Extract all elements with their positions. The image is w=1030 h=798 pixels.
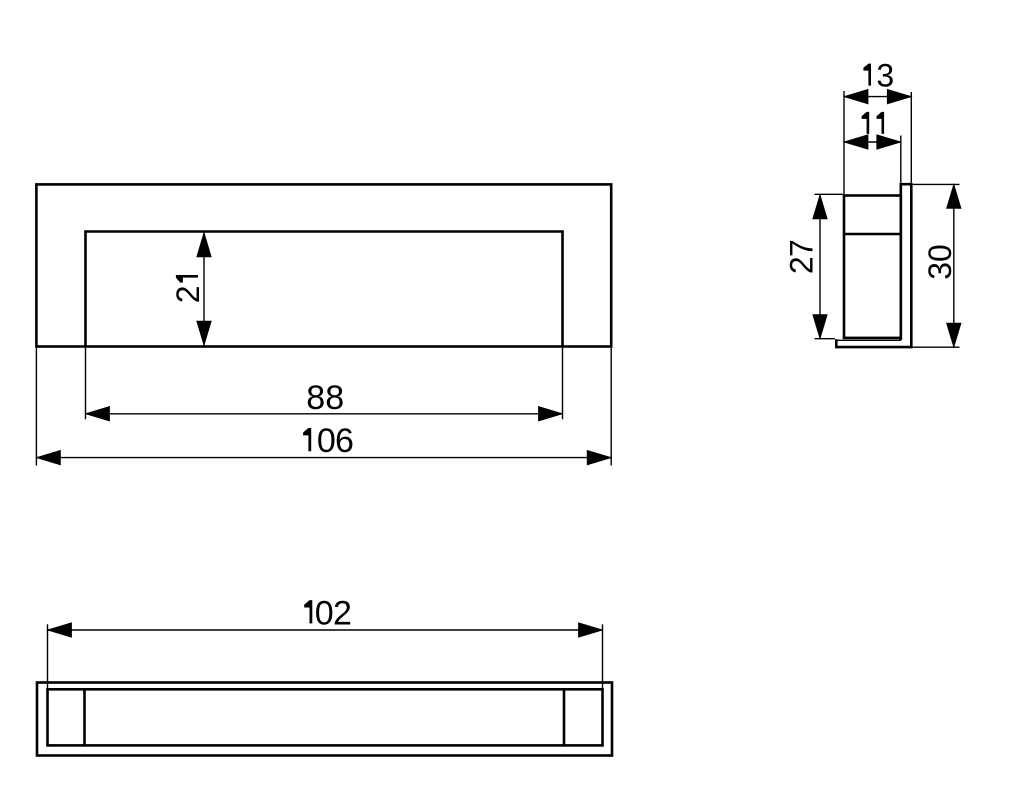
svg-text:0: 0 — [922, 244, 958, 262]
svg-text:2: 2 — [333, 595, 352, 633]
svg-text:3: 3 — [922, 262, 958, 280]
svg-text:88: 88 — [306, 379, 344, 417]
svg-text:0: 0 — [315, 595, 334, 633]
svg-text:7: 7 — [784, 239, 820, 257]
svg-text:3: 3 — [876, 57, 894, 93]
svg-text:2: 2 — [170, 285, 206, 303]
svg-text:0: 0 — [317, 422, 336, 460]
svg-text:2: 2 — [784, 256, 820, 274]
svg-text:6: 6 — [335, 422, 354, 460]
